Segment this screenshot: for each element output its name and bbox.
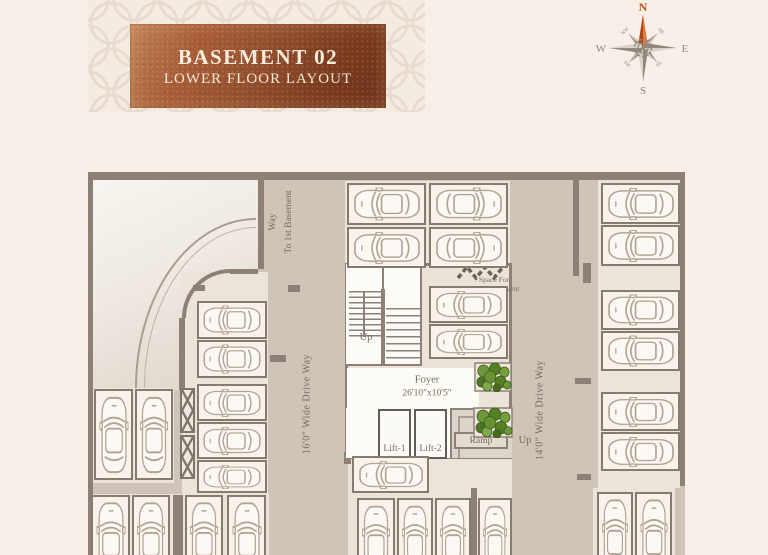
car-top-view-icon bbox=[203, 345, 262, 374]
wall-right bbox=[680, 180, 685, 486]
wall-curve-top bbox=[230, 269, 258, 274]
car-top-view-icon bbox=[402, 504, 428, 555]
parking-stall bbox=[397, 498, 433, 555]
car-top-view-icon bbox=[607, 230, 675, 262]
foyer-label: Foyer 26'10"x10'5" bbox=[372, 374, 482, 401]
parking-stall bbox=[601, 290, 680, 330]
page-title: BASEMENT 02 bbox=[178, 44, 338, 70]
wall-stub bbox=[270, 355, 286, 362]
lift-1: Lift-1 bbox=[378, 409, 411, 459]
parking-stall bbox=[185, 495, 223, 555]
wall-stub bbox=[583, 263, 591, 283]
stair-mid-wall bbox=[381, 289, 385, 365]
wall-curve-side bbox=[179, 318, 185, 390]
parking-stall bbox=[601, 225, 680, 266]
parking-stall bbox=[429, 183, 508, 225]
parking-stall bbox=[197, 422, 267, 459]
parking-stall bbox=[135, 389, 173, 480]
mech-vent-line1: Space For bbox=[456, 275, 532, 284]
car-top-view-icon bbox=[190, 501, 218, 555]
structural-column bbox=[180, 435, 195, 479]
parking-stall bbox=[601, 183, 680, 224]
car-top-view-icon bbox=[435, 188, 503, 221]
way-line2: To 1st Basement bbox=[281, 190, 297, 253]
parking-stall bbox=[429, 227, 508, 268]
drive-way-16-label: 16'0" Wide Drive Way bbox=[302, 354, 313, 454]
screen: BASEMENT 02 LOWER FLOOR LAYOUT N E S W N… bbox=[0, 0, 768, 555]
car-top-view-icon bbox=[96, 501, 125, 555]
parking-stall bbox=[429, 324, 508, 359]
wall-stub bbox=[288, 285, 300, 292]
car-top-view-icon bbox=[137, 501, 165, 555]
compass-label-e: E bbox=[682, 43, 689, 55]
car-top-view-icon bbox=[353, 232, 421, 264]
wall-pillar bbox=[173, 495, 183, 555]
car-top-view-icon bbox=[232, 501, 261, 555]
way-to-basement-label: Way To 1st Basement bbox=[265, 190, 297, 253]
foyer-size: 26'10"x10'5" bbox=[372, 388, 482, 401]
parking-stall bbox=[635, 492, 672, 555]
parking-stall bbox=[227, 495, 266, 555]
wall-stub bbox=[193, 285, 205, 291]
parking-stall bbox=[347, 183, 426, 225]
car-top-view-icon bbox=[358, 461, 424, 489]
wall-top bbox=[88, 172, 685, 180]
lift-2-label: Lift-2 bbox=[419, 444, 441, 454]
compass-label-ne: NE bbox=[656, 28, 664, 36]
car-top-view-icon bbox=[140, 395, 168, 474]
parking-stall bbox=[597, 492, 633, 555]
floor-plan: Up Space For Mechanical Vent Foyer 26'10… bbox=[88, 172, 685, 555]
drive-way-14-label: 14'0" Wide Drive Way bbox=[535, 360, 546, 460]
planter-icon bbox=[473, 407, 513, 438]
car-top-view-icon bbox=[353, 188, 421, 221]
car-top-view-icon bbox=[435, 232, 503, 264]
foyer-name: Foyer bbox=[372, 374, 482, 388]
car-top-view-icon bbox=[607, 397, 675, 427]
lift-1-label: Lift-1 bbox=[383, 444, 405, 454]
compass-label-w: W bbox=[596, 43, 607, 55]
parking-stall bbox=[478, 498, 512, 555]
wall-right-corridor bbox=[573, 180, 579, 276]
parking-stall bbox=[197, 460, 267, 493]
parking-stall bbox=[601, 331, 680, 371]
car-top-view-icon bbox=[483, 504, 507, 555]
car-top-view-icon bbox=[203, 427, 262, 455]
parking-stall bbox=[91, 495, 130, 555]
wall-corridor bbox=[258, 180, 264, 269]
car-top-view-icon bbox=[203, 465, 262, 489]
compass-rose-icon: N E S W NW NE SE SW bbox=[595, 0, 691, 96]
page-subtitle: LOWER FLOOR LAYOUT bbox=[164, 71, 352, 88]
title-banner: BASEMENT 02 LOWER FLOOR LAYOUT bbox=[130, 24, 386, 108]
car-top-view-icon bbox=[602, 498, 628, 555]
planter-icon bbox=[474, 362, 512, 392]
car-top-view-icon bbox=[640, 498, 667, 555]
way-line1: Way bbox=[265, 190, 281, 253]
structural-column bbox=[180, 388, 195, 433]
car-top-view-icon bbox=[607, 188, 675, 220]
car-top-view-icon bbox=[607, 336, 675, 367]
parking-stall bbox=[197, 301, 267, 339]
parking-stall bbox=[197, 340, 267, 378]
parking-stall bbox=[347, 227, 426, 268]
car-top-view-icon bbox=[435, 291, 503, 319]
car-top-view-icon bbox=[607, 295, 675, 326]
wall-stub bbox=[577, 474, 591, 480]
parking-stall bbox=[601, 432, 680, 471]
parking-stall bbox=[132, 495, 170, 555]
compass-label-nw: NW bbox=[621, 27, 631, 37]
stairs-up-label: Up bbox=[350, 332, 382, 343]
banner-pattern-block: BASEMENT 02 LOWER FLOOR LAYOUT bbox=[88, 0, 425, 112]
stair-landing-divider bbox=[382, 264, 384, 291]
stair-flight-lower bbox=[386, 308, 420, 364]
parking-stall bbox=[601, 392, 680, 431]
parking-stall bbox=[429, 286, 508, 323]
car-top-view-icon bbox=[440, 504, 466, 555]
car-top-view-icon bbox=[435, 329, 503, 355]
stair-flight-upper bbox=[349, 291, 381, 337]
car-top-view-icon bbox=[362, 504, 390, 555]
car-top-view-icon bbox=[99, 395, 128, 474]
parking-stall bbox=[357, 498, 395, 555]
lift-2: Lift-2 bbox=[414, 409, 447, 459]
parking-stall bbox=[352, 456, 429, 493]
car-top-view-icon bbox=[203, 306, 262, 335]
wall-pillar bbox=[471, 488, 477, 555]
compass-label-s: S bbox=[640, 85, 646, 96]
parking-stall bbox=[94, 389, 133, 480]
parking-stall bbox=[435, 498, 471, 555]
parking-stall bbox=[197, 384, 267, 421]
wall-stub bbox=[575, 378, 591, 384]
compass-label-n: N bbox=[639, 0, 648, 14]
car-top-view-icon bbox=[203, 389, 262, 417]
car-top-view-icon bbox=[607, 437, 675, 467]
